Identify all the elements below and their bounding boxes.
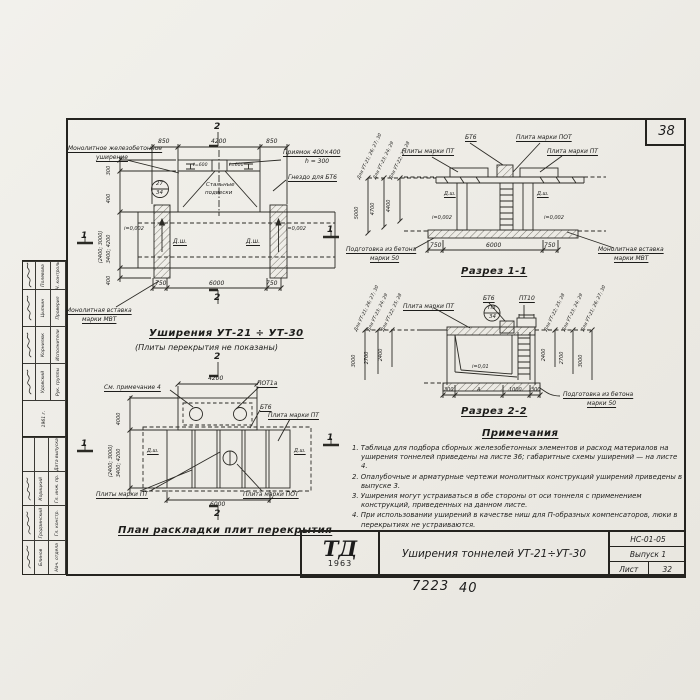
d3-section1-mark-right: 1: [327, 434, 333, 443]
d1-pit-dim-left: ℓ=600: [193, 164, 208, 169]
signature-scribble: [23, 540, 35, 574]
d1-detail-ref-top: 27: [156, 182, 163, 188]
d2-label-base-1: Подготовка из бетона: [346, 247, 416, 253]
d3-joint-right: Д.ш.: [294, 449, 306, 454]
stamp-name: Корицкий: [35, 471, 49, 505]
stamp-role: Гл. констр.: [49, 506, 66, 540]
stamp-block-signatures: 1961 г. Удовский Корнилюк Цыпкин Полевов…: [22, 260, 68, 438]
signature-scribble: [23, 261, 36, 289]
d1-dim-top-right: 850: [266, 139, 277, 145]
d4-dim-a: А: [477, 388, 480, 393]
d3-label-pt-bottom: Плиты марки ПТ: [96, 492, 148, 498]
title-block: ТД 1963 Уширения тоннелей УТ-21÷УТ-30 НС…: [300, 530, 686, 578]
signature-scribble: [23, 326, 36, 363]
stamp-name: [35, 437, 49, 471]
note-item: 4. При использовании уширений в качестве…: [352, 511, 683, 529]
d1-dim-left-1: 300: [107, 166, 112, 176]
d1-label-socket: Гнездо для БТ6: [288, 175, 337, 181]
d4-rot-right-value-1: 2400: [542, 349, 547, 362]
doc-code: НС-01-05: [610, 532, 686, 547]
d4-section-linework: [363, 303, 595, 398]
note-item: 1. Таблица для подбора сборных железобет…: [352, 444, 683, 472]
stamp-name: Гродзинский: [35, 506, 49, 540]
d2-rot-value-1: 5000: [355, 207, 360, 220]
d1-section1-mark-right: 1: [327, 226, 333, 235]
d4-label-base-2: марки 50: [587, 401, 616, 407]
d1-label-insert-1: Монолитная вставка: [66, 308, 132, 314]
d2-caption: Разрез 1-1: [461, 267, 527, 278]
stamp-block-approvals: Блинов Гродзинский Корицкий Нач. отдела …: [22, 436, 68, 575]
d2-dim-6000: 6000: [486, 243, 501, 249]
d4-label-pt: Плита марки ПТ: [403, 304, 454, 310]
d2-label-bt6: БТ6: [465, 135, 477, 141]
stamp-role: Нач. отдела: [49, 540, 66, 574]
d3-label-bt6: БТ6: [260, 405, 272, 411]
scanned-drawing-sheet: { "page": { "sheet_corner": "38", "handw…: [0, 0, 700, 700]
d4-dim-1000: 1000: [509, 388, 522, 393]
d4-label-base-1: Подготовка из бетона: [563, 392, 633, 398]
d2-label-pt-left: Плиты марки ПТ: [402, 149, 454, 155]
d3-section2-mark-bottom: 2: [214, 510, 220, 519]
d3-dim-bottom: 6000: [210, 502, 225, 508]
stamp-year: 1961 г.: [23, 400, 66, 437]
d3-label-note: См. примечание 4: [104, 385, 161, 391]
stamp-role: Н. контроль: [51, 261, 66, 289]
d4-rot-left-value-1: 3000: [352, 355, 357, 368]
stamp-role: Исполнители: [51, 326, 66, 363]
d1-section1-mark-left: 1: [81, 232, 87, 241]
d4-rot-left-value-2: 2700: [365, 352, 370, 365]
title-block-codes: НС-01-05 Выпуск 1 Лист 32: [608, 532, 686, 576]
d1-dim-top-mid: 4200: [211, 139, 226, 145]
d1-label-ties-1: Стальные: [206, 183, 235, 189]
note-item: 3. Уширения могут устраиваться в обе сто…: [352, 492, 683, 510]
d1-label-ties-2: подвески: [205, 191, 232, 197]
signature-scribble: [23, 471, 35, 505]
stamp-name: Удовский: [36, 363, 51, 400]
d2-rot-value-2: 4700: [371, 203, 376, 216]
d1-label-pit-2: h = 300: [305, 159, 329, 165]
d1-slope-left: i=0,002: [124, 227, 144, 232]
d1-caption: Уширения УТ-21 ÷ УТ-30: [149, 329, 304, 340]
notes-block: 1. Таблица для подбора сборных железобет…: [352, 444, 683, 531]
stamp-name: Корнилюк: [36, 326, 51, 363]
d1-dim-left-3: (2400; 3000): [99, 231, 104, 264]
d2-label-base-2: марки 50: [370, 256, 399, 262]
d4-detail-ref-bottom: 34: [489, 315, 496, 321]
d1-section2-mark-top: 2: [214, 123, 220, 132]
d3-joint-left: Д.ш.: [147, 449, 159, 454]
d4-detail-ref-top: ПЗ: [488, 306, 496, 312]
d1-label-insert-2: марки МВТ: [82, 317, 116, 323]
d1-slope-right: i=0,002: [286, 227, 306, 232]
sheet-corner-number: 38: [645, 118, 686, 146]
sheet-label: Лист: [610, 562, 648, 576]
d4-caption: Разрез 2-2: [461, 407, 527, 418]
d2-dim-750-left: 750: [430, 243, 441, 249]
d3-section1-mark-left: 1: [81, 440, 87, 449]
linework-svg: [0, 0, 700, 700]
d1-joint-right: Д.ш.: [246, 239, 260, 245]
d4-dim-300-left: 300: [444, 388, 454, 393]
d2-dim-750-right: 750: [544, 243, 555, 249]
d2-slope-right: i=0,002: [544, 216, 564, 221]
signature-scribble: [23, 289, 36, 326]
stamp-name: Блинов: [35, 540, 49, 574]
d2-joint-left: Д.ш.: [444, 192, 456, 197]
d4-slope: i=0,01: [472, 365, 489, 370]
note-item: 2. Опалубочные и арматурные чертежи моно…: [352, 473, 683, 491]
d4-rot-left-value-3: 2400: [379, 349, 384, 362]
d1-joint-left: Д.ш.: [173, 239, 187, 245]
issue-number: Выпуск 1: [610, 547, 686, 562]
signature-scribble: [23, 437, 35, 471]
stamp-role: Дата выпуска: [49, 437, 66, 471]
d1-dim-left-4: 3400; 4200: [107, 235, 112, 264]
d1-dim-left-2: 400: [107, 194, 112, 204]
stamp-role: Рук. группы: [51, 363, 66, 400]
d2-label-insert-1: Монолитная вставка: [598, 247, 664, 253]
logo-td: ТД: [323, 540, 357, 559]
logo-year: 1963: [328, 559, 352, 568]
sheet-number: 32: [648, 562, 687, 576]
d1-pit-dim-right: ℓ=600: [229, 164, 244, 169]
d3-section2-mark-top: 2: [214, 353, 220, 362]
d4-rot-right-value-3: 3000: [579, 355, 584, 368]
d1-dim-top-left: 850: [158, 139, 169, 145]
d2-label-insert-2: марки МВТ: [614, 256, 648, 262]
d1-subcaption: (Плиты перекрытия не показаны): [135, 344, 278, 352]
d1-label-widening-1: Монолитное железобетонное: [68, 146, 162, 152]
stamp-name: Цыпкин: [36, 289, 51, 326]
d3-dim-left-1: 4000: [117, 413, 122, 426]
stamp-role: Проверил: [51, 289, 66, 326]
signature-scribble: [23, 363, 36, 400]
d2-label-pt-right: Плита марки ПТ: [547, 149, 598, 155]
d1-dim-left-5: 400: [107, 276, 112, 286]
d4-label-bt6: БТ6: [483, 296, 495, 302]
handwritten-number-right: 40: [459, 581, 478, 596]
d4-rot-right-value-2: 2700: [560, 352, 565, 365]
d1-dim-bottom-mid: 6000: [209, 281, 224, 287]
org-logo: ТД 1963: [302, 532, 380, 576]
stamp-role: Гл. инж. пр.: [49, 471, 66, 505]
d2-joint-right: Д.ш.: [537, 192, 549, 197]
d3-label-pt-right: Плита марки ПТ: [268, 413, 319, 419]
d3-dim-left-3: 3400; 4200: [117, 449, 122, 478]
notes-heading: Примечания: [482, 429, 558, 440]
drawing-title: Уширения тоннелей УТ-21÷УТ-30: [380, 532, 608, 576]
d1-section2-mark-bottom: 2: [214, 294, 220, 303]
d4-dim-300-right: 300: [531, 388, 541, 393]
signature-scribble: [23, 506, 35, 540]
d2-rot-value-3: 4400: [387, 200, 392, 213]
d3-label-pot-bottom: Плита марки ПОТ: [243, 492, 299, 498]
d2-label-pot: Плита марки ПОТ: [516, 135, 572, 141]
d3-label-pot1a: ПОТ1а: [257, 381, 277, 387]
d1-detail-ref-bottom: 34: [156, 191, 163, 197]
d1-label-widening-2: уширение: [96, 155, 128, 161]
d3-dim-left-2: (2400; 3000): [109, 445, 114, 478]
stamp-name: Полевова: [36, 261, 51, 289]
d2-slope-left: i=0,002: [432, 216, 452, 221]
d1-dim-bottom-left: 750: [155, 281, 166, 287]
handwritten-number-left: 7223: [412, 579, 449, 594]
d3-dim-top: 4200: [208, 376, 223, 382]
sheet-row: Лист 32: [610, 562, 686, 576]
d1-dim-bottom-right: 750: [266, 281, 277, 287]
d1-label-pit-1: Приямок 400×400: [283, 150, 341, 156]
d4-label-pt10: ПТ10: [519, 296, 535, 302]
